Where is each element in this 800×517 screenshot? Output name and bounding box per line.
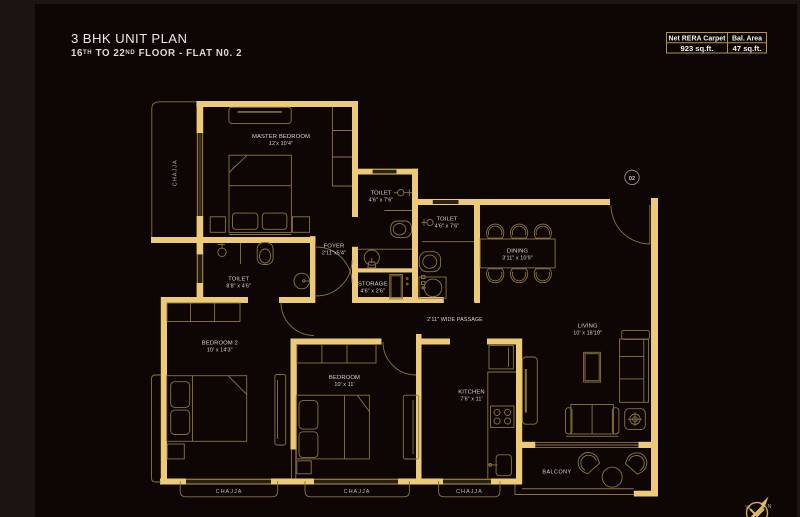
svg-text:TOILET: TOILET xyxy=(436,217,457,223)
svg-text:DINING: DINING xyxy=(507,248,529,254)
svg-text:CHAJJA: CHAJJA xyxy=(344,489,371,495)
svg-text:BEDROOM: BEDROOM xyxy=(329,375,360,381)
svg-text:CHAJJA: CHAJJA xyxy=(216,489,243,495)
svg-text:TOILET: TOILET xyxy=(370,190,391,196)
svg-text:BALCONY: BALCONY xyxy=(542,469,571,475)
svg-text:2'11"x5'4": 2'11"x5'4" xyxy=(322,250,346,256)
svg-text:10' x 18'10": 10' x 18'10" xyxy=(573,331,602,337)
svg-text:923 sq.ft.: 923 sq.ft. xyxy=(681,44,714,53)
svg-text:LIVING: LIVING xyxy=(578,324,598,330)
svg-text:3 BHK UNIT PLAN: 3 BHK UNIT PLAN xyxy=(71,31,187,46)
svg-text:CHAJJA: CHAJJA xyxy=(173,159,179,186)
svg-text:W: W xyxy=(745,505,751,511)
svg-text:47 sq.ft.: 47 sq.ft. xyxy=(733,44,762,53)
svg-text:TOILET: TOILET xyxy=(228,277,249,283)
svg-text:2'11" WIDE PASSAGE: 2'11" WIDE PASSAGE xyxy=(427,317,483,323)
svg-text:STORAGE: STORAGE xyxy=(358,282,387,288)
svg-text:CHAJJA: CHAJJA xyxy=(456,489,483,495)
svg-text:KITCHEN: KITCHEN xyxy=(458,390,485,396)
svg-text:FOYER: FOYER xyxy=(324,243,345,249)
svg-text:4'6" x 2'6": 4'6" x 2'6" xyxy=(360,289,385,295)
svg-text:4'6" x 7'6": 4'6" x 7'6" xyxy=(435,224,460,230)
svg-text:MASTER BEDROOM: MASTER BEDROOM xyxy=(252,134,310,140)
svg-text:16TH TO 22ND FLOOR - FLAT N0.: 16TH TO 22ND FLOOR - FLAT N0. 2 xyxy=(71,48,242,59)
svg-text:3'11" x 10'9": 3'11" x 10'9" xyxy=(502,255,532,261)
svg-text:N: N xyxy=(768,504,772,510)
svg-text:4'6" x 7'6": 4'6" x 7'6" xyxy=(369,197,394,203)
svg-text:02: 02 xyxy=(629,176,635,182)
svg-text:Bal. Area: Bal. Area xyxy=(732,36,762,43)
svg-text:10' x 14'3": 10' x 14'3" xyxy=(207,348,233,354)
svg-text:Net RERA Carpet: Net RERA Carpet xyxy=(669,36,727,43)
svg-text:12'x 10'4": 12'x 10'4" xyxy=(269,141,293,147)
svg-text:8'8" x 4'6": 8'8" x 4'6" xyxy=(226,284,251,290)
svg-text:BEDROOM 2: BEDROOM 2 xyxy=(202,341,238,347)
svg-text:10' x 11': 10' x 11' xyxy=(334,382,354,388)
svg-text:7'6" x 11': 7'6" x 11' xyxy=(460,397,482,403)
